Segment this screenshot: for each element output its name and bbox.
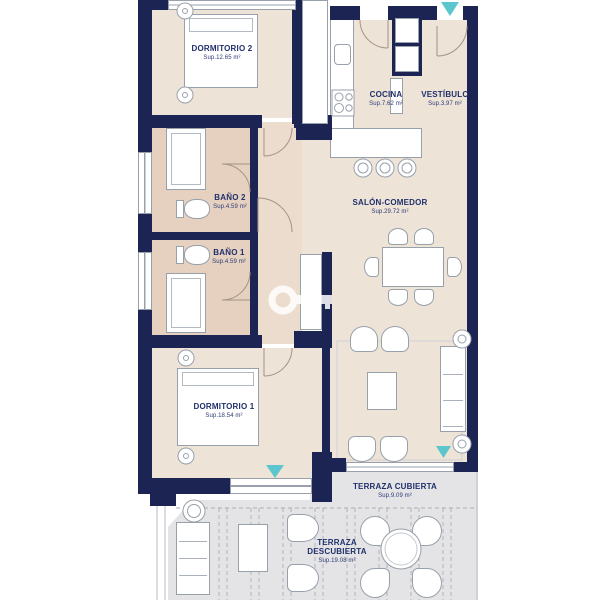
utility-shaft bbox=[302, 0, 328, 124]
shower-icon bbox=[166, 273, 206, 333]
wall bbox=[467, 14, 478, 472]
sliding-window bbox=[346, 462, 454, 472]
window bbox=[138, 252, 152, 310]
wall bbox=[312, 478, 332, 494]
room-label-bano-1: BAÑO 1 Sup.4.59 m² bbox=[212, 248, 246, 265]
armchair-icon bbox=[348, 436, 376, 462]
fridge-icon bbox=[395, 18, 419, 43]
sink-icon bbox=[334, 44, 351, 65]
room-label-terraza-descubierta: TERRAZA DESCUBIERTA Sup.19.08 m² bbox=[304, 538, 370, 565]
wall bbox=[330, 458, 346, 472]
pillow-icon bbox=[189, 18, 253, 32]
lounge-chair-icon bbox=[287, 564, 319, 592]
terrace-chair-icon bbox=[412, 568, 442, 598]
wall bbox=[454, 462, 467, 472]
shower-icon bbox=[166, 128, 206, 190]
wall bbox=[150, 490, 176, 506]
wall bbox=[152, 0, 168, 10]
appliance-icon bbox=[395, 46, 419, 72]
floorplan-canvas: DORMITORIO 2 Sup.12.65 m² COCINA Sup.7.6… bbox=[0, 0, 600, 600]
room-label-dormitorio-1: DORMITORIO 1 Sup.18.54 m² bbox=[194, 402, 255, 419]
wardrobe bbox=[300, 254, 322, 330]
door-opening bbox=[360, 6, 388, 20]
toilet-tank-icon bbox=[176, 246, 184, 264]
terrace-chair-icon bbox=[412, 516, 442, 546]
kitchen-island-icon bbox=[330, 128, 422, 158]
wall bbox=[138, 0, 152, 494]
entrance-opening bbox=[437, 6, 463, 20]
chair-icon bbox=[388, 228, 408, 245]
hallway bbox=[258, 122, 302, 344]
toilet-icon bbox=[184, 199, 210, 219]
wall bbox=[330, 6, 360, 20]
toilet-tank-icon bbox=[176, 200, 184, 218]
wall bbox=[292, 0, 302, 124]
wall bbox=[152, 115, 262, 128]
outdoor-table-icon bbox=[238, 524, 268, 572]
wall bbox=[152, 232, 250, 240]
room-label-dormitorio-2: DORMITORIO 2 Sup.12.65 m² bbox=[192, 44, 253, 61]
wall bbox=[312, 452, 332, 502]
sofa-icon bbox=[440, 346, 466, 432]
pillow-icon bbox=[182, 372, 254, 386]
armchair-icon bbox=[350, 326, 378, 352]
chair-icon bbox=[364, 257, 379, 277]
window bbox=[168, 0, 296, 10]
wall bbox=[250, 128, 258, 344]
terrace-chair-icon bbox=[360, 568, 390, 598]
room-label-salon-comedor: SALÓN-COMEDOR Sup.29.72 m² bbox=[352, 198, 427, 215]
armchair-icon bbox=[380, 436, 408, 462]
room-label-terraza-cubierta: TERRAZA CUBIERTA Sup.9.09 m² bbox=[353, 482, 437, 499]
outdoor-sofa-icon bbox=[176, 522, 210, 595]
armchair-icon bbox=[381, 326, 409, 352]
hallway-passage bbox=[302, 140, 332, 254]
chair-icon bbox=[447, 257, 462, 277]
room-label-bano-2: BAÑO 2 Sup.4.59 m² bbox=[213, 193, 247, 210]
toilet-icon bbox=[184, 245, 210, 265]
room-label-cocina: COCINA Sup.7.62 m² bbox=[369, 90, 403, 107]
sliding-window bbox=[230, 478, 312, 494]
room-label-vestibulo: VESTÍBULO Sup.3.97 m² bbox=[421, 90, 469, 107]
chair-icon bbox=[414, 228, 434, 245]
wall bbox=[322, 252, 332, 348]
window bbox=[138, 152, 152, 214]
chair-icon bbox=[388, 289, 408, 306]
coffee-table-icon bbox=[367, 372, 397, 410]
wall bbox=[152, 335, 262, 348]
chair-icon bbox=[414, 289, 434, 306]
dining-table-icon bbox=[382, 247, 444, 287]
